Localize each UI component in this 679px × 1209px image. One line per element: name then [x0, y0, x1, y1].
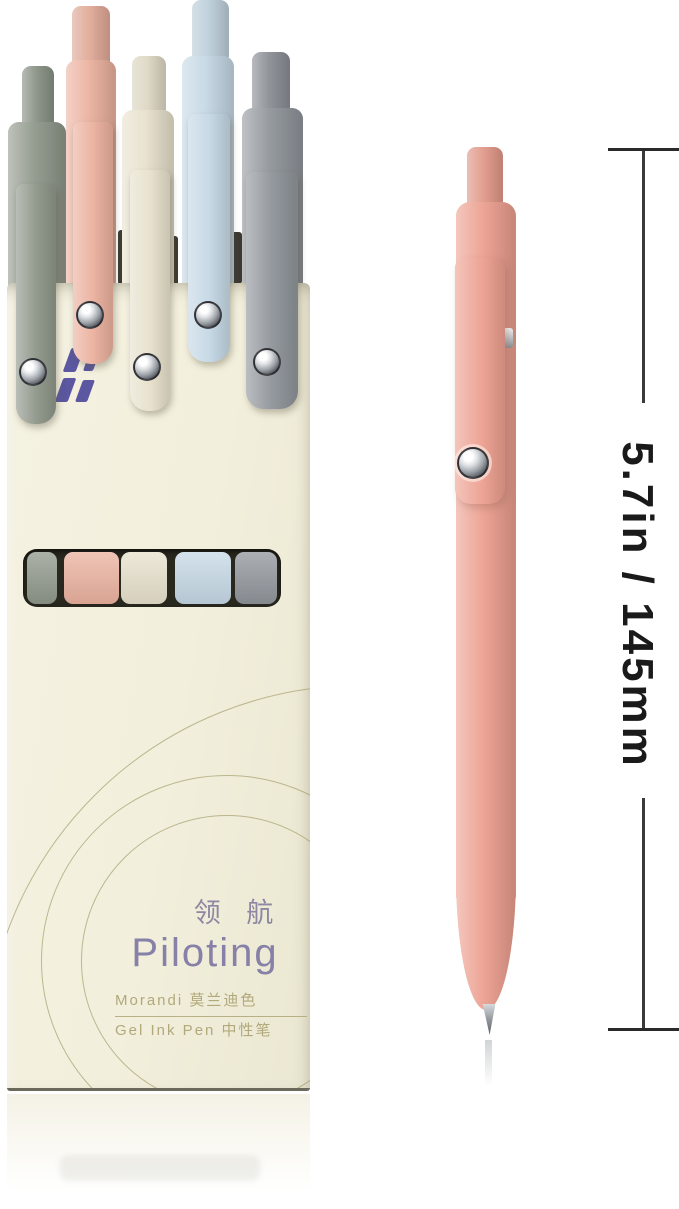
logo-stripe	[55, 378, 77, 402]
measure-line-top	[642, 151, 645, 403]
clip-ball	[133, 353, 161, 381]
brand-name-chinese: 领 航	[133, 891, 310, 930]
window-reflection	[60, 1155, 260, 1181]
pen-body-chip-blush	[64, 552, 119, 604]
logo-stripe	[75, 380, 95, 402]
clip-ball	[19, 358, 47, 386]
pen-plunger-cream	[132, 56, 166, 116]
clip-ball	[253, 348, 281, 376]
single-pen-clip-ball	[457, 447, 489, 479]
pen-clip-sage	[16, 184, 56, 424]
clip-ball	[194, 301, 222, 329]
single-pen-plunger	[467, 147, 503, 209]
pen-body-chip-cream	[121, 552, 167, 604]
pen-body-chip-blue	[175, 552, 231, 604]
single-pen-taper	[456, 868, 516, 1010]
pen-tip-reflection	[485, 1040, 492, 1086]
pen-plunger-blue	[192, 0, 229, 60]
pen-plunger-gray	[252, 52, 290, 114]
pen-plunger-sage	[22, 66, 54, 128]
clip-ball	[76, 301, 104, 329]
box-reflection	[7, 1094, 310, 1209]
pen-body-chip-sage	[27, 552, 57, 604]
box-window	[23, 549, 281, 607]
pen-plunger-blush	[72, 6, 110, 66]
product-photo: 领 航 Piloting Morandi 莫兰迪色 Gel Ink Pen 中性…	[0, 0, 679, 1209]
measure-line-bottom	[642, 798, 645, 1030]
tagline-gel-ink-pen: Gel Ink Pen 中性笔	[115, 1019, 310, 1040]
tagline-morandi: Morandi 莫兰迪色	[115, 989, 307, 1017]
measure-label: 5.7in / 145mm	[614, 395, 662, 815]
measure-tick-bottom	[608, 1028, 679, 1031]
brand-name-english: Piloting	[100, 931, 310, 976]
pen-body-chip-gray	[235, 552, 277, 604]
